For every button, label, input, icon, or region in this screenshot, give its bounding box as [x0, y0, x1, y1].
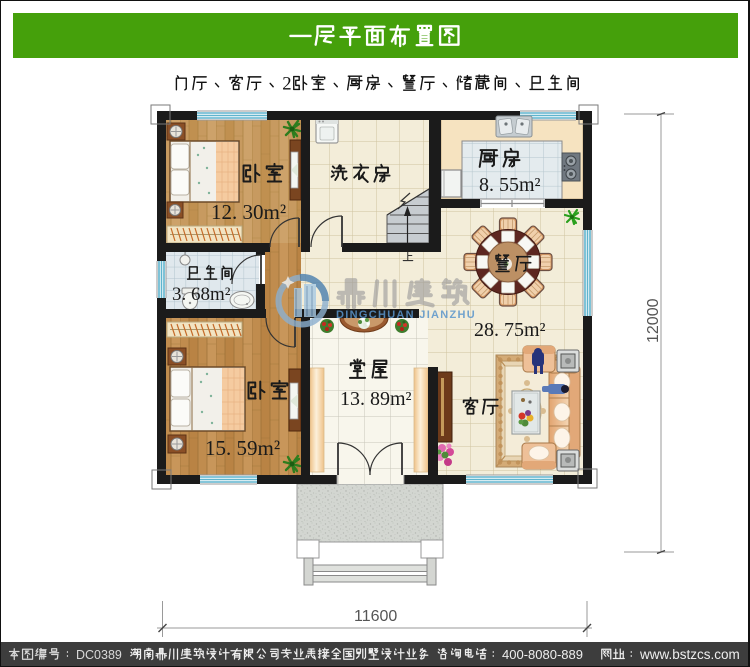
- svg-text:15. 59m²: 15. 59m²: [205, 436, 280, 460]
- svg-text:11600: 11600: [354, 608, 397, 625]
- svg-text:DINGCHUAN JIANZHU: DINGCHUAN JIANZHU: [336, 309, 476, 321]
- svg-text:3. 68m²: 3. 68m²: [172, 284, 231, 305]
- svg-text:DC0389: DC0389: [76, 648, 122, 662]
- svg-text:8. 55m²: 8. 55m²: [479, 174, 541, 196]
- svg-text:12. 30m²: 12. 30m²: [211, 200, 286, 224]
- svg-text:12000: 12000: [645, 298, 662, 343]
- svg-text:2: 2: [282, 74, 291, 95]
- svg-text:www.bstzcs.com: www.bstzcs.com: [639, 647, 740, 662]
- svg-text:13. 89m²: 13. 89m²: [340, 388, 412, 410]
- svg-text:400-8080-889: 400-8080-889: [502, 647, 583, 662]
- svg-text:28. 75m²: 28. 75m²: [474, 319, 546, 341]
